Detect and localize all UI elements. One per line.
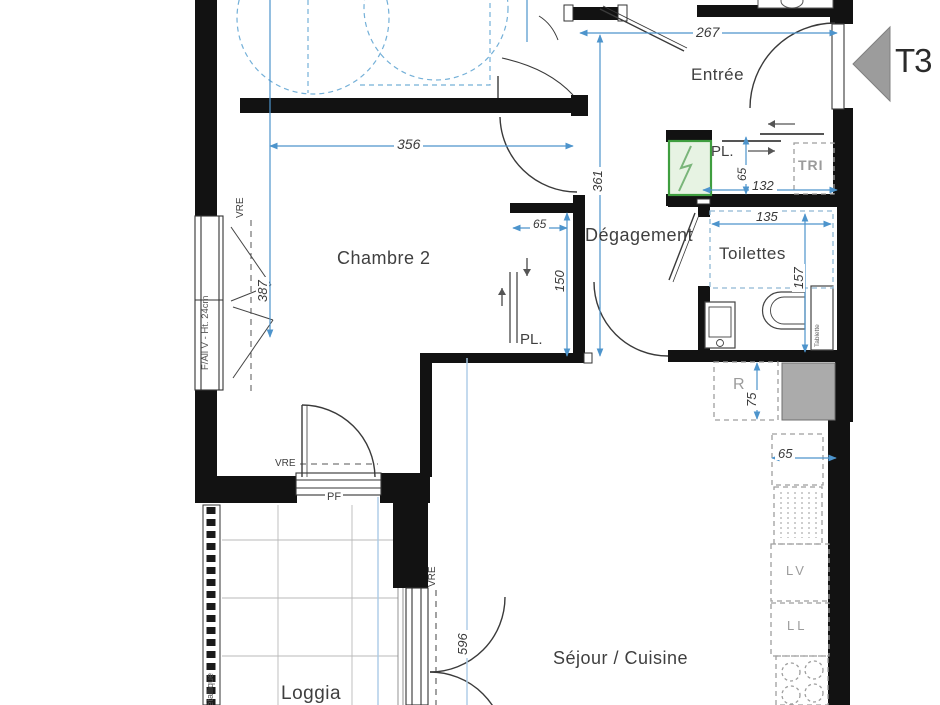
accessibility-circles — [237, 0, 508, 94]
entree-door-arc — [750, 23, 835, 108]
room-label-chambre2: Chambre 2 — [337, 249, 431, 267]
room-label-entree: Entrée — [691, 66, 744, 83]
loggia-floor — [222, 505, 403, 705]
chambre2-door-arc — [500, 117, 577, 192]
room-label-sejour-cuisine: Séjour / Cuisine — [553, 649, 688, 667]
vre-chambre-door-label: VRE — [275, 459, 296, 469]
floor-plan-canvas: Entrée Chambre 2 Dégagement Toilettes Sé… — [0, 0, 940, 705]
dim-entree-width: 267 — [693, 25, 722, 39]
upper-door-leaf — [600, 9, 684, 51]
sink-drainer-box — [774, 487, 822, 544]
dim-placard-entree-depth: 65 — [736, 165, 748, 184]
dim-placard-entree-width: 132 — [749, 179, 777, 192]
dim-chambre2-width: 356 — [394, 137, 423, 151]
dim-placard-chambre-width: 150 — [553, 267, 566, 295]
porte-fenetre-label: PF — [325, 492, 343, 503]
washing-machine-label: LL — [787, 619, 807, 632]
sliding-door-entree — [722, 120, 824, 155]
placard-entree-label: PL. — [711, 144, 734, 159]
dim-kitchen-counter-depth: 65 — [775, 447, 795, 460]
vre-chambre-window-label: VRE — [236, 197, 246, 218]
window-spec-label: F/All V - Ht. 24cm — [201, 296, 211, 370]
upper-arc-fragment — [539, 16, 558, 40]
tablette-label: Tablette — [815, 324, 822, 347]
dim-toilettes-width: 135 — [753, 210, 781, 223]
railing-label: métallique — [206, 673, 215, 705]
dim-toilettes-height: 157 — [792, 264, 805, 292]
walls — [195, 0, 853, 705]
pf-door-arc — [302, 405, 375, 477]
dim-degagement-height: 361 — [591, 167, 604, 195]
sejour-window — [406, 588, 436, 705]
dim-placard-chambre-depth: 65 — [530, 218, 549, 230]
floor-plan-drawing — [0, 0, 940, 705]
entree-door-leaf — [832, 24, 844, 109]
vre-sejour-label: VRE — [428, 566, 438, 587]
toilettes-door-arc — [594, 282, 668, 356]
placard-chambre-label: PL. — [520, 332, 543, 347]
wc-bowl — [763, 292, 806, 329]
electrical-panel — [669, 141, 711, 195]
t3-arrow-marker — [853, 27, 890, 101]
dim-gaine-width: 75 — [745, 390, 758, 410]
room-label-toilettes: Toilettes — [719, 245, 786, 262]
room-label-loggia: Loggia — [281, 684, 341, 703]
upper-room-fixture — [758, 0, 833, 8]
tri-label: TRI — [798, 158, 824, 172]
room-label-degagement: Dégagement — [585, 226, 693, 244]
dim-chambre2-height: 387 — [256, 277, 269, 305]
refrigerator-label: R — [733, 377, 745, 393]
dashed-fixtures — [710, 143, 834, 705]
upper-room-door-arc — [502, 58, 573, 95]
unit-type-label: T3 — [895, 44, 932, 77]
dim-sejour-height: 596 — [456, 630, 469, 658]
duct-shaft — [782, 363, 835, 420]
dishwasher-label: LV — [786, 564, 807, 577]
